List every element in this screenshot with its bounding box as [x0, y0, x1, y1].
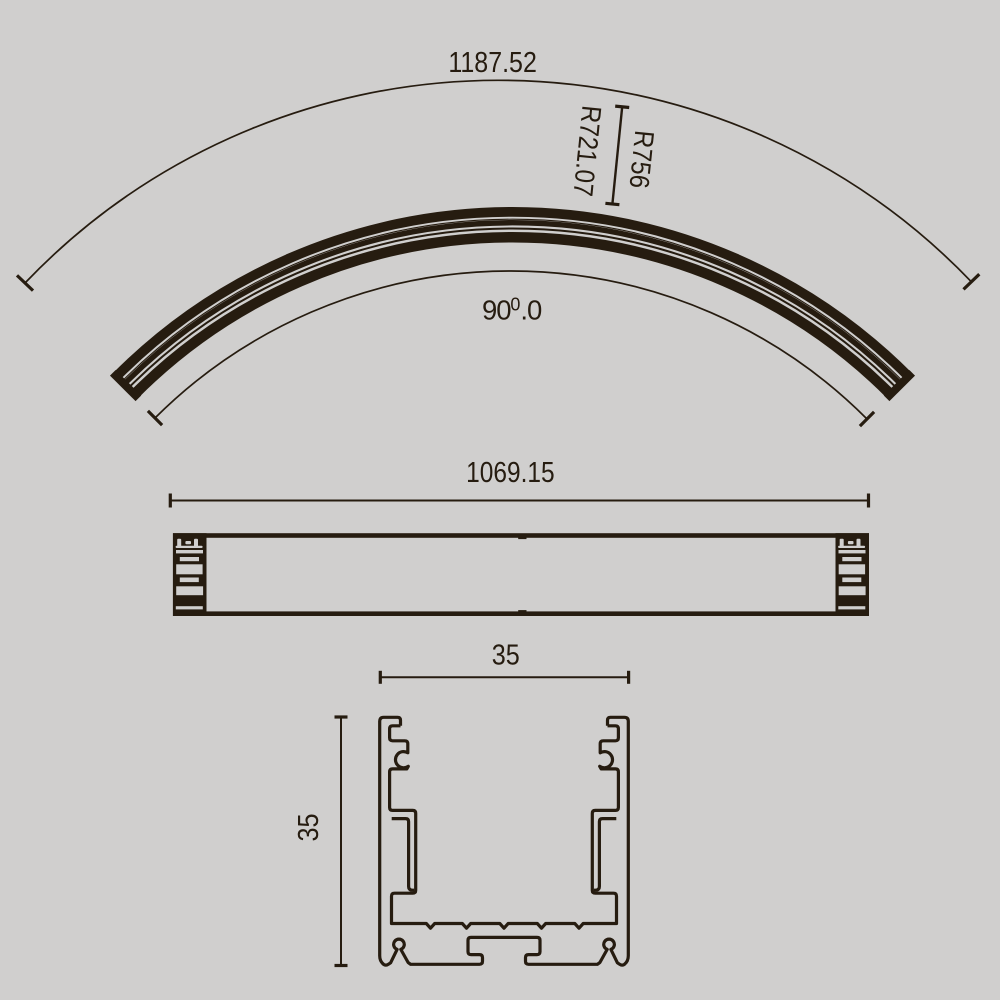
svg-text:1069.15: 1069.15 [466, 457, 555, 489]
svg-text:35: 35 [492, 640, 520, 672]
svg-text:35: 35 [293, 814, 325, 842]
svg-text:1187.52: 1187.52 [448, 47, 537, 79]
svg-text:R756: R756 [624, 129, 661, 190]
